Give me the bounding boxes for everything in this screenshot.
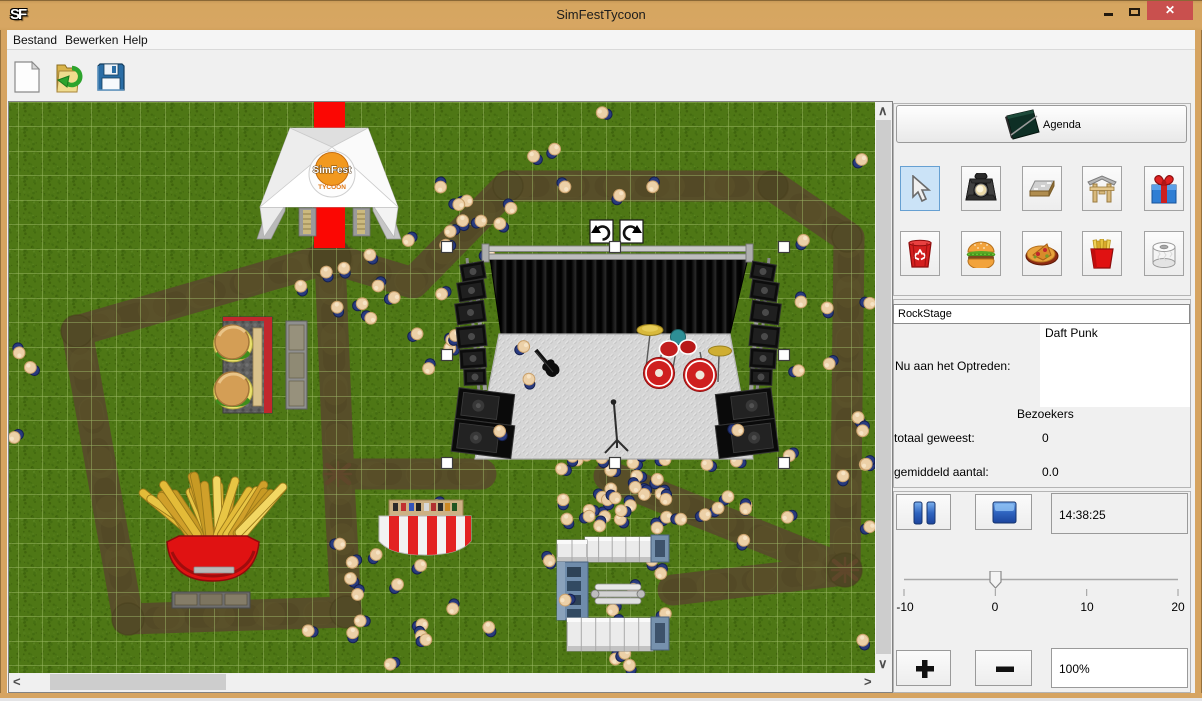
- svg-text:0: 0: [992, 600, 999, 614]
- svg-text:20: 20: [1171, 600, 1185, 614]
- svg-text:SimFest: SimFest: [313, 165, 353, 176]
- svg-text:TYCOON: TYCOON: [318, 184, 346, 191]
- svg-text:-10: -10: [896, 600, 914, 614]
- svg-text:10: 10: [1080, 600, 1094, 614]
